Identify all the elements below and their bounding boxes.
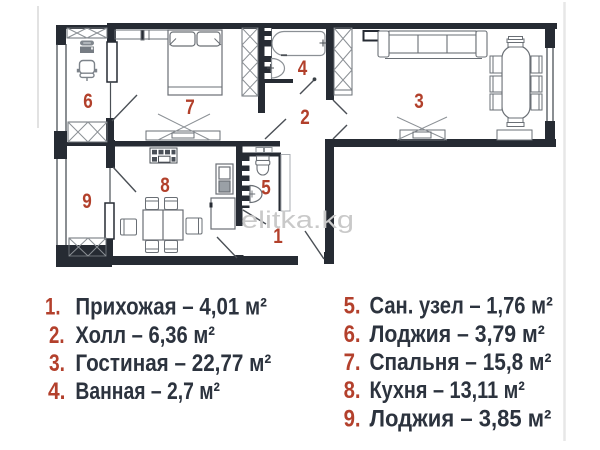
- svg-text:Кухня – 13,11 м²: Кухня – 13,11 м²: [370, 377, 525, 404]
- svg-text:8.: 8.: [344, 377, 361, 404]
- svg-text:4.: 4.: [48, 378, 66, 405]
- svg-text:7.: 7.: [344, 349, 361, 376]
- svg-text:9: 9: [82, 190, 92, 213]
- svg-text:4: 4: [298, 57, 308, 80]
- svg-text:Прихожая – 4,01 м²: Прихожая – 4,01 м²: [75, 294, 267, 321]
- svg-text:2: 2: [300, 106, 310, 129]
- svg-text:9.: 9.: [344, 405, 361, 432]
- svg-text:Гостиная – 22,77 м²: Гостиная – 22,77 м²: [75, 350, 271, 377]
- svg-text:Спальня – 15,8 м²: Спальня – 15,8 м²: [370, 349, 552, 376]
- svg-text:6: 6: [83, 90, 93, 113]
- svg-text:Ванная – 2,7 м²: Ванная – 2,7 м²: [75, 378, 220, 405]
- svg-text:3.: 3.: [49, 350, 65, 377]
- svg-text:5: 5: [261, 177, 271, 200]
- svg-text:Сан. узел – 1,76 м²: Сан. узел – 1,76 м²: [370, 293, 553, 320]
- svg-text:Лоджия – 3,79 м²: Лоджия – 3,79 м²: [370, 321, 545, 348]
- svg-text:3: 3: [414, 90, 424, 113]
- svg-text:elitka.kg: elitka.kg: [241, 207, 354, 234]
- svg-text:7: 7: [185, 96, 195, 119]
- svg-text:6.: 6.: [344, 321, 361, 348]
- svg-text:Холл – 6,36 м²: Холл – 6,36 м²: [75, 322, 215, 349]
- svg-text:1.: 1.: [45, 294, 61, 321]
- svg-text:2.: 2.: [49, 322, 65, 349]
- svg-text:Лоджия – 3,85 м²: Лоджия – 3,85 м²: [370, 405, 552, 432]
- svg-text:5.: 5.: [344, 293, 361, 320]
- svg-text:8: 8: [160, 174, 170, 197]
